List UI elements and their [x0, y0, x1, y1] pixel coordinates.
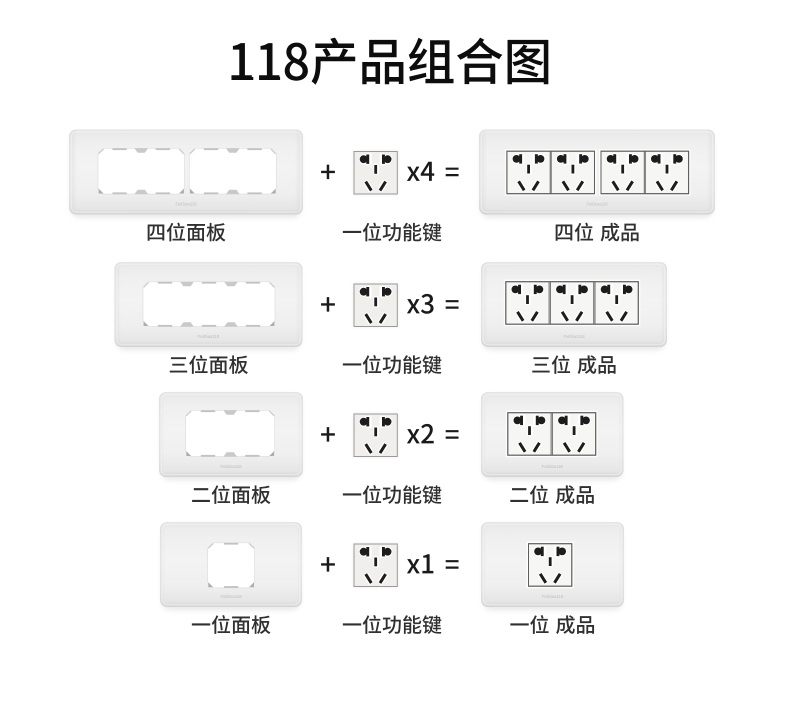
- svg-text:FeiDiao118: FeiDiao118: [220, 464, 242, 469]
- svg-text:FeiDiao118: FeiDiao118: [586, 202, 608, 207]
- svg-text:FeiDiao118: FeiDiao118: [220, 594, 242, 599]
- svg-text:FeiDiao118: FeiDiao118: [542, 464, 564, 469]
- svg-text:FeiDiao118: FeiDiao118: [542, 594, 564, 599]
- svg-text:FeiDiao118: FeiDiao118: [563, 334, 585, 339]
- svg-text:FeiDiao118: FeiDiao118: [175, 202, 197, 207]
- svg-text:FeiDiao118: FeiDiao118: [198, 334, 220, 339]
